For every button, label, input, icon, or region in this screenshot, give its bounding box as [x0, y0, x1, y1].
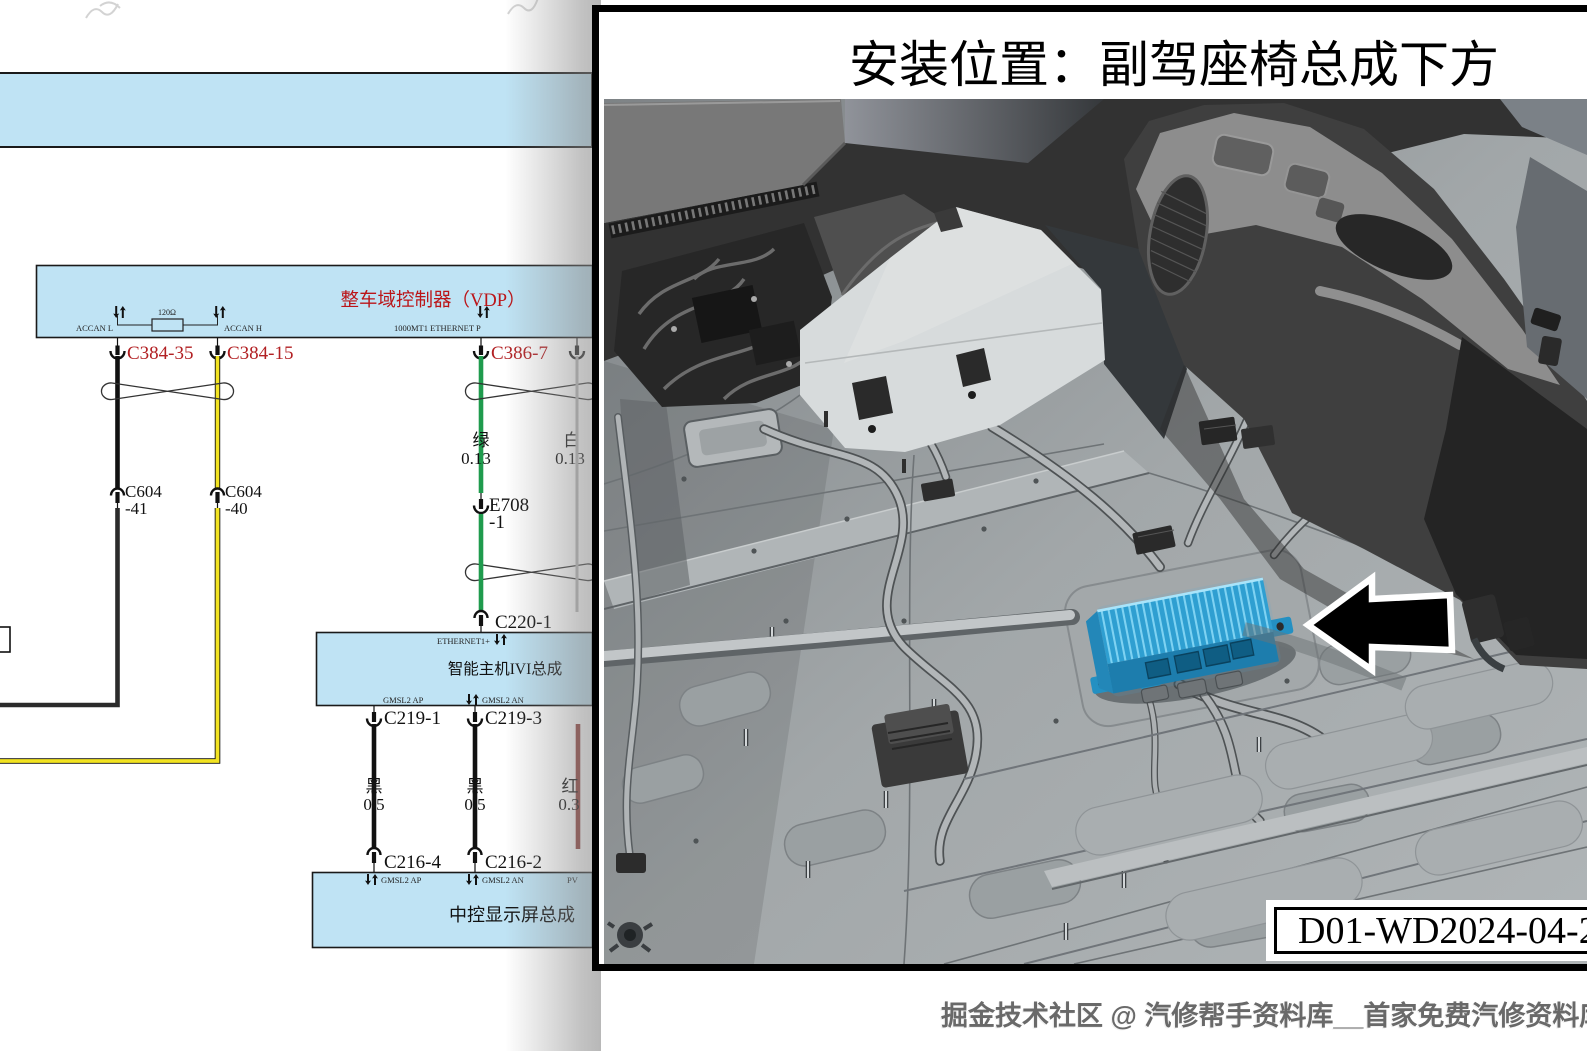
svg-text:C216-4: C216-4 — [384, 852, 442, 873]
svg-text:黑: 黑 — [366, 777, 383, 796]
svg-text:ETHERNET1+: ETHERNET1+ — [437, 636, 490, 646]
svg-text:-40: -40 — [225, 499, 248, 518]
svg-text:ACCAN L: ACCAN L — [76, 323, 113, 333]
svg-text:黑: 黑 — [467, 777, 484, 796]
svg-text:ACCAN H: ACCAN H — [224, 323, 262, 333]
svg-text:绿: 绿 — [473, 431, 490, 450]
svg-text:-1: -1 — [489, 512, 505, 533]
svg-text:GMSL2 AP: GMSL2 AP — [381, 875, 422, 885]
svg-text:C384-35: C384-35 — [127, 343, 194, 364]
svg-text:C219-1: C219-1 — [384, 708, 441, 729]
svg-text:-41: -41 — [125, 499, 148, 518]
svg-text:GMSL2 AP: GMSL2 AP — [383, 695, 424, 705]
svg-text:120Ω: 120Ω — [158, 308, 176, 317]
svg-text:0.13: 0.13 — [461, 449, 491, 468]
svg-text:0.5: 0.5 — [464, 795, 485, 814]
svg-text:C384-15: C384-15 — [227, 343, 294, 364]
svg-text:0.5: 0.5 — [363, 795, 384, 814]
svg-text:1000MT1 ETHERNET P: 1000MT1 ETHERNET P — [394, 323, 481, 333]
svg-text:整车域控制器（VDP）: 整车域控制器（VDP） — [340, 290, 525, 311]
